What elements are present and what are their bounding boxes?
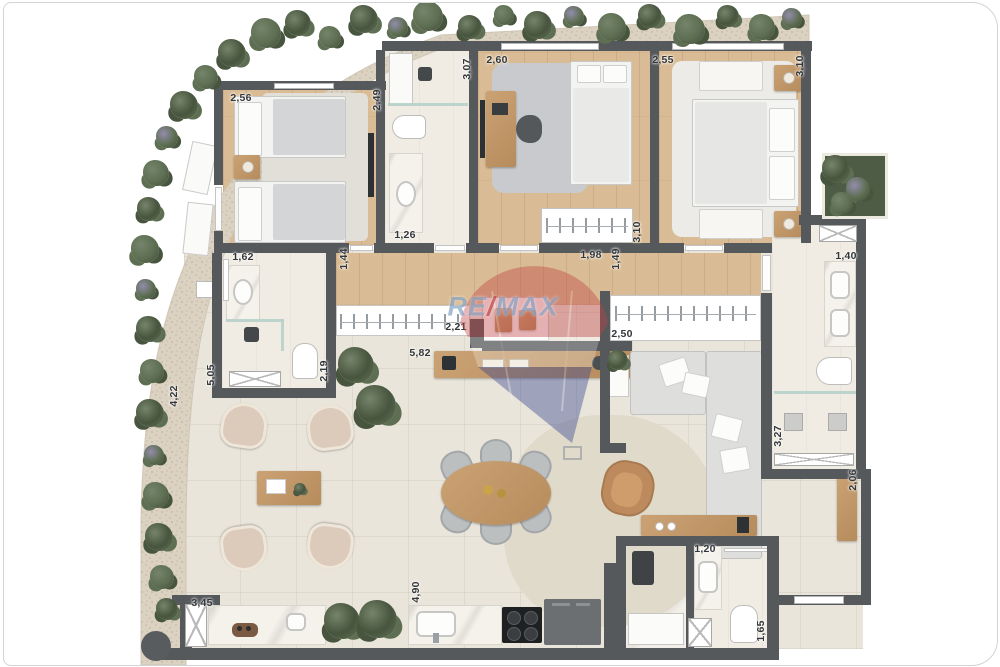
- dimension-label: 2,56: [230, 92, 251, 104]
- dimension-label: 1,62: [232, 251, 253, 263]
- dimension-label: 3,07: [461, 58, 473, 79]
- dimension-label: 4,90: [410, 581, 422, 602]
- watermark-text: RE/MAX: [447, 292, 558, 323]
- dimension-label: 1,40: [835, 250, 856, 262]
- dimension-label: 3,27: [772, 425, 784, 446]
- dimension-label: 1,20: [694, 543, 715, 555]
- dimension-label: 1,26: [394, 229, 415, 241]
- dimension-label: 1,44: [338, 248, 350, 269]
- dimension-label: 3,10: [794, 55, 806, 76]
- dimension-label: 1,65: [755, 620, 767, 641]
- dimension-label: 2,60: [486, 54, 507, 66]
- dimension-label: 5,05: [205, 364, 217, 385]
- dimension-label: 3,45: [191, 597, 212, 609]
- dimension-label: 2,06: [847, 469, 859, 490]
- dimension-label: 2,19: [318, 360, 330, 381]
- watermark-balloon-icon: [422, 251, 642, 466]
- dimension-label: 2,49: [371, 89, 383, 110]
- plan-frame: 2,562,493,072,602,553,101,261,621,443,10…: [3, 2, 998, 666]
- dimension-label: 3,10: [631, 221, 643, 242]
- dimension-label: 4,22: [168, 385, 180, 406]
- floor-plan-image: 2,562,493,072,602,553,101,261,621,443,10…: [0, 0, 1000, 667]
- dimension-label: 2,55: [652, 54, 673, 66]
